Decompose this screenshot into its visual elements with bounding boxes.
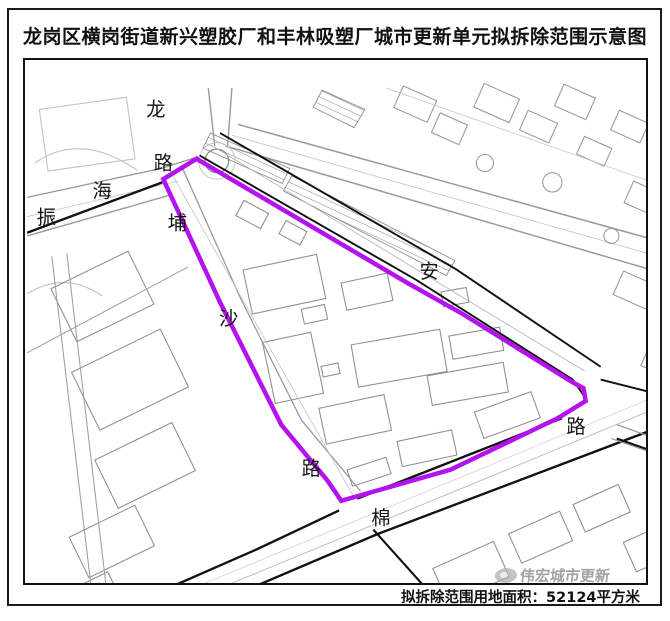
intersection-bottomleft — [27, 583, 116, 585]
road-label: 埔 — [168, 212, 187, 235]
road-label: 海 — [93, 179, 112, 202]
buildings-right — [613, 271, 648, 393]
map-canvas: 龙路海振埔沙路安路路棉红 — [25, 60, 648, 585]
watermark-text: 伟宏城市更新 — [519, 565, 611, 586]
road-label: 龙 — [146, 98, 165, 121]
buildings-left — [27, 251, 195, 585]
road-label: 棉 — [371, 506, 390, 529]
road-label: 路 — [154, 152, 173, 175]
road-labels: 龙路海振埔沙路安路路棉红 — [37, 98, 648, 585]
buildings-topright — [386, 83, 648, 259]
watermark-logo-icon — [494, 568, 518, 583]
watermark: 伟宏城市更新 — [494, 564, 666, 586]
road-label: 安 — [420, 260, 439, 283]
schematic-map-page: 龙岗区横岗街道新兴塑胶厂和丰林吸塑厂城市更新单元拟拆除范围示意图 — [0, 0, 670, 621]
map-title: 龙岗区横岗街道新兴塑胶厂和丰林吸塑厂城市更新单元拟拆除范围示意图 — [10, 22, 660, 49]
map-frame: 龙路海振埔沙路安路路棉红 — [23, 58, 648, 585]
road-label: 路 — [302, 457, 321, 480]
road-label: 振 — [37, 206, 56, 229]
road-label: 沙 — [219, 307, 238, 330]
area-caption: 拟拆除范围用地面积：52124平方米 — [23, 586, 640, 606]
road-label: 路 — [566, 415, 585, 438]
road-pusha — [163, 168, 360, 501]
